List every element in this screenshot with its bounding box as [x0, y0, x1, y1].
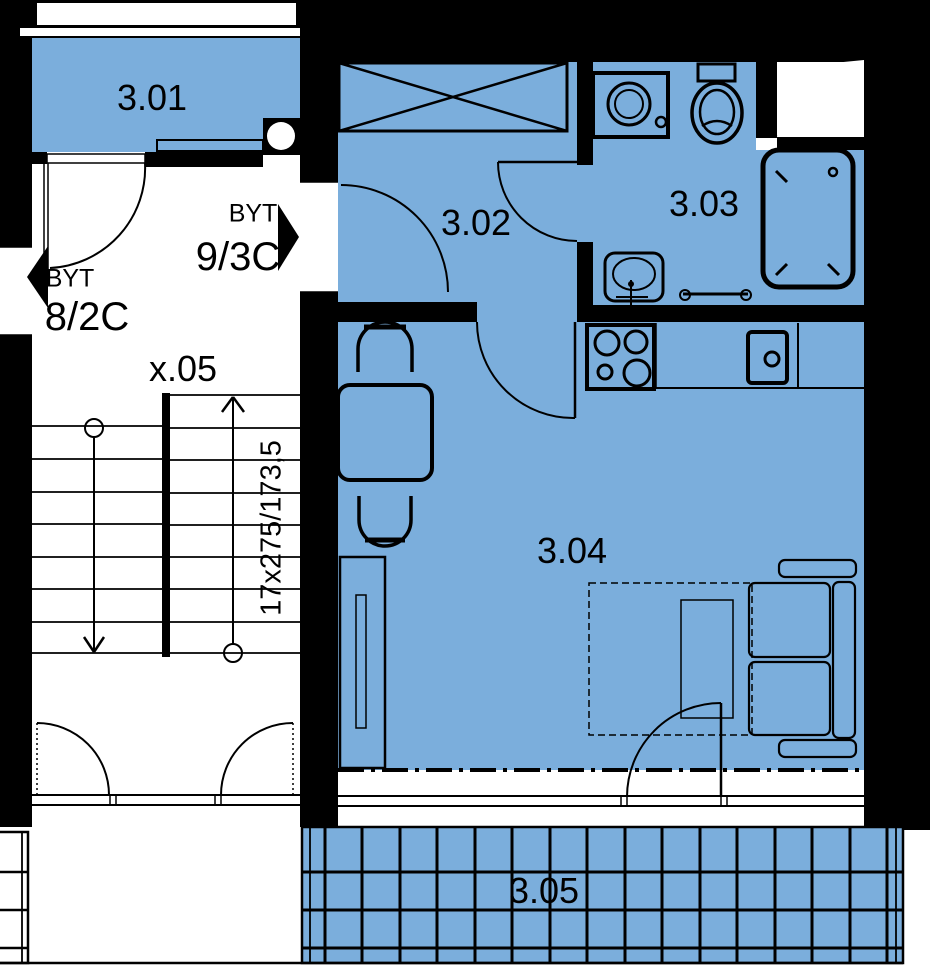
- window-band-room: [338, 796, 864, 806]
- byt-9-prefix: BYT: [229, 202, 278, 227]
- stair-direction-down: [84, 419, 104, 652]
- floor-plan: 3.01 3.02 3.03 3.04 3.05 x.05 17x275/173…: [0, 0, 930, 966]
- apartment-entry-opening: [300, 182, 338, 292]
- entrance-door-swing: [44, 154, 145, 271]
- room-304-label: 3.04: [537, 533, 607, 569]
- washing-machine-icon: [263, 118, 300, 155]
- neighbor-balcony-grid: [0, 832, 28, 963]
- byt-8-number: 8/2C: [45, 297, 130, 337]
- room-301-label: 3.01: [117, 80, 187, 116]
- floor-plan-drawing: [0, 0, 930, 966]
- room-303-label: 3.03: [669, 186, 739, 222]
- window-band-corridor: [32, 795, 300, 805]
- room-302-label: 3.02: [441, 205, 511, 241]
- stairwell-label: x.05: [149, 351, 217, 387]
- byt-8-prefix: BYT: [46, 267, 95, 292]
- byt-9-number: 9/3C: [196, 237, 281, 277]
- neighbor-entry-opening: [0, 247, 32, 335]
- stair-dimension-label: 17x275/173,5: [258, 440, 287, 616]
- room-305-label: 3.05: [509, 873, 579, 909]
- upper-gallery: [20, 3, 300, 36]
- double-entry-door: [37, 723, 293, 795]
- open-window-sash: [777, 60, 864, 137]
- arrow-right-icon: [278, 204, 299, 271]
